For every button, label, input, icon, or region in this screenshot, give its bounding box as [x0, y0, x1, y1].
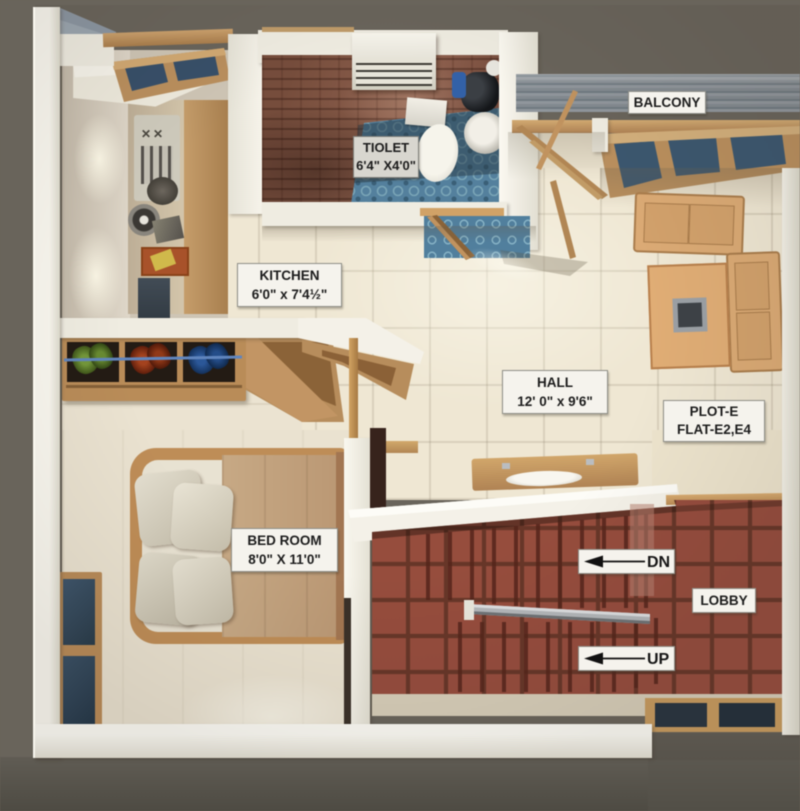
svg-text:DN: DN [647, 554, 670, 571]
svg-text:UP: UP [647, 651, 670, 668]
